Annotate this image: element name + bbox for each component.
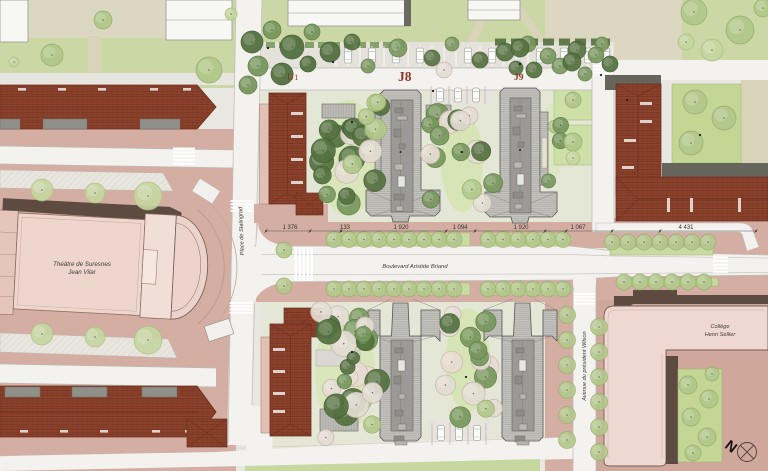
svg-text:Jean Vilar: Jean Vilar bbox=[67, 269, 96, 276]
svg-text:J9: J9 bbox=[514, 73, 524, 83]
svg-text:Henri Sellier: Henri Sellier bbox=[705, 332, 737, 338]
svg-text:Boulevard Aristide Briand: Boulevard Aristide Briand bbox=[382, 264, 448, 270]
svg-text:4 431: 4 431 bbox=[678, 225, 694, 231]
svg-text:1 067: 1 067 bbox=[570, 225, 586, 231]
svg-text:1 920: 1 920 bbox=[513, 225, 529, 231]
svg-text:1 920: 1 920 bbox=[393, 225, 409, 231]
svg-text:Collège: Collège bbox=[711, 324, 730, 330]
svg-text:133: 133 bbox=[340, 225, 351, 231]
svg-text:U1: U1 bbox=[287, 72, 298, 83]
svg-text:Avenue du président Wilson: Avenue du président Wilson bbox=[582, 331, 588, 402]
svg-text:1 376: 1 376 bbox=[282, 225, 298, 231]
svg-text:J8: J8 bbox=[398, 69, 412, 84]
svg-text:Théâtre de Suresnes: Théâtre de Suresnes bbox=[53, 261, 111, 268]
svg-text:1 094: 1 094 bbox=[452, 225, 468, 231]
